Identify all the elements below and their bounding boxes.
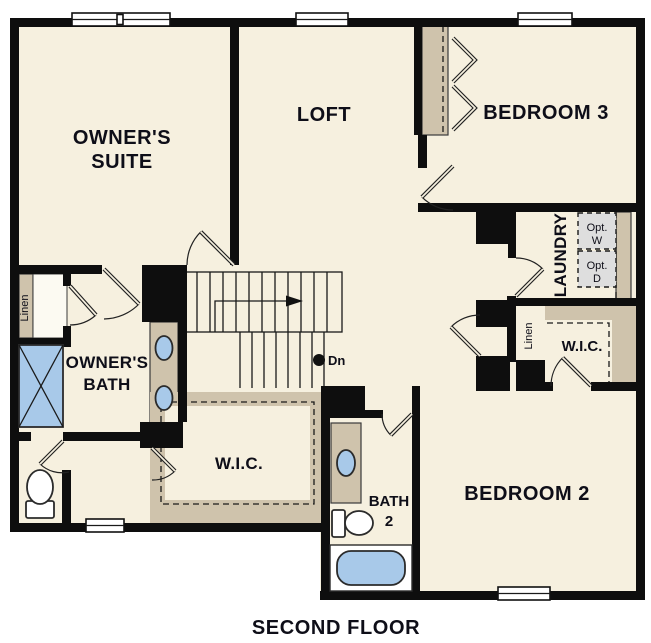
opt-dryer-line1: Opt. (587, 260, 608, 272)
linen-right-label: Linen (523, 323, 535, 350)
vanity-sink-1 (156, 336, 173, 360)
shower (19, 345, 63, 427)
window-loft (296, 13, 348, 26)
vanity-sink-2 (156, 386, 173, 410)
stair-down-marker (313, 354, 325, 366)
linen-left-interior (33, 274, 67, 338)
toilet-water-closet (26, 470, 54, 518)
plan-title: SECOND FLOOR (252, 617, 420, 639)
bathtub (330, 545, 412, 591)
optional-washer: Opt. W (578, 213, 616, 249)
opt-washer-line2: W (592, 235, 603, 247)
optional-dryer: Opt. D (578, 251, 616, 287)
bedroom3-label: BEDROOM 3 (483, 102, 609, 124)
toilet-bath2 (332, 510, 373, 537)
laundry-label: LAUNDRY (551, 212, 570, 297)
owners-bath-label-1: OWNER'S (66, 353, 149, 372)
owners-bath-label-2: BATH (83, 375, 130, 394)
window-bedroom2 (498, 587, 550, 600)
opt-dryer-line2: D (593, 273, 601, 285)
linen-left-label: Linen (19, 295, 31, 322)
opt-washer-line1: Opt. (587, 222, 608, 234)
loft-label: LOFT (297, 104, 351, 126)
wic-right-label: W.I.C. (562, 338, 603, 355)
laundry-counter (616, 212, 631, 304)
owners-suite-label-2: SUITE (91, 151, 152, 173)
wic-right-shelf-side (612, 306, 636, 386)
bedroom2-label: BEDROOM 2 (464, 483, 590, 505)
window-hall-bottom (86, 519, 124, 532)
window-owners-suite (72, 13, 170, 26)
wic-center-label: W.I.C. (215, 454, 263, 473)
bedroom3-closet (422, 22, 448, 135)
bath2-sink (337, 450, 355, 476)
stair-down-label: Dn (328, 353, 345, 368)
window-bedroom3 (518, 13, 572, 26)
floor-plan-page: Dn (0, 0, 651, 643)
bath2-label-1: BATH (369, 493, 410, 510)
bath2-label-2: 2 (385, 513, 393, 530)
owners-suite-label-1: OWNER'S (73, 127, 171, 149)
floor-plan-drawing: Dn (0, 0, 651, 643)
